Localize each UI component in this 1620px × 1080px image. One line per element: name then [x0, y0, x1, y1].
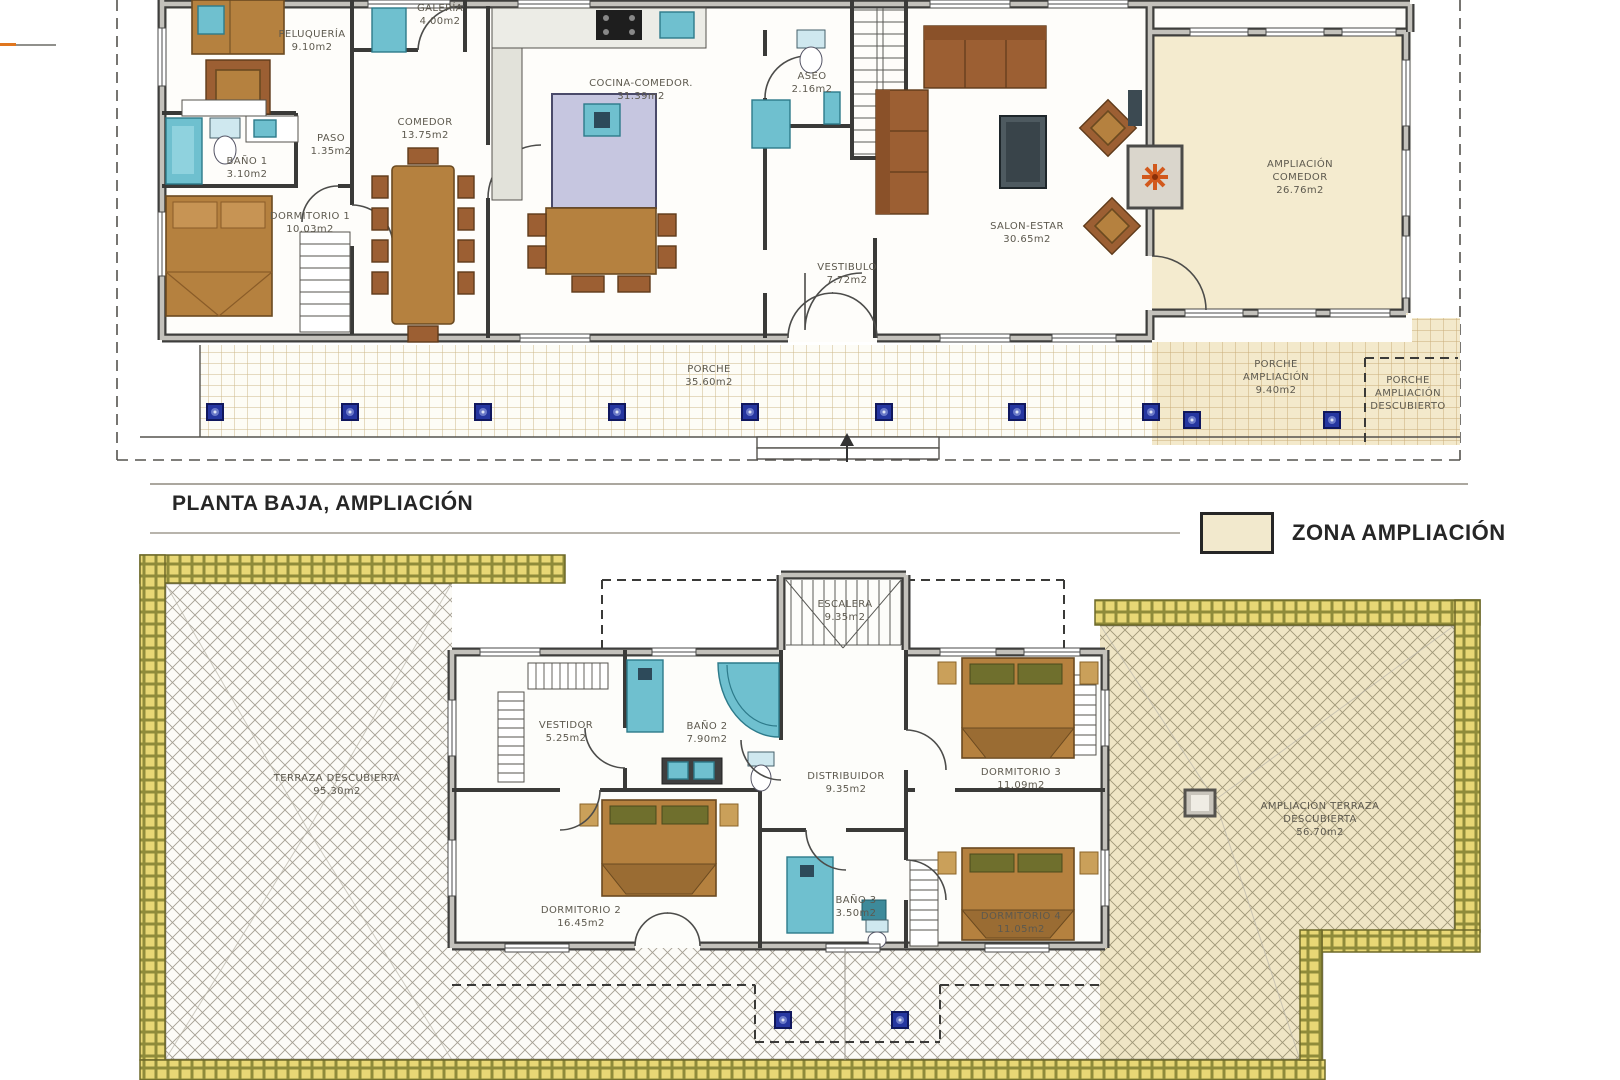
room-label-galeria: GALERÍA4.00m2	[400, 2, 480, 28]
room-label-vestidor: VESTIDOR5.25m2	[526, 719, 606, 745]
radiator-icon	[1128, 90, 1142, 126]
divider-line	[150, 532, 1180, 534]
room-label-cocina-comedor: COCINA-COMEDOR.31.39m2	[571, 77, 711, 103]
room-label-peluqueria: PELUQUERÍA9.10m2	[257, 28, 367, 54]
legend-label: ZONA AMPLIACIÓN	[1292, 520, 1506, 546]
room-label-porche: PORCHE35.60m2	[669, 363, 749, 389]
terrace-column-icon	[1185, 790, 1215, 816]
porch-tiles	[200, 345, 1185, 437]
room-label-dormitorio3: DORMITORIO 311.09m2	[961, 766, 1081, 792]
room-label-distribuidor: DISTRIBUIDOR9.35m2	[791, 770, 901, 796]
room-label-terraza-descubierta: TERRAZA DESCUBIERTA95.30m2	[252, 772, 422, 798]
room-label-paso: PASO1.35m2	[301, 132, 361, 158]
room-label-bano1: BAÑO 13.10m2	[212, 155, 282, 181]
divider-line	[150, 483, 1468, 485]
room-label-dormitorio1: DORMITORIO 110.03m2	[255, 210, 365, 236]
column-marker-icon	[775, 1012, 791, 1028]
bed-icon	[580, 800, 738, 896]
room-label-porche-descubierto: PORCHE AMPLIACIÓN DESCUBIERTO	[1358, 374, 1458, 413]
water-heater-icon	[752, 100, 790, 148]
sink-icon	[246, 116, 298, 142]
room-label-vestibulo: VESTIBULO7.72m2	[802, 261, 892, 287]
sofa-icon	[924, 26, 1046, 88]
vanity-sink-icon	[662, 758, 722, 784]
margin-mark-icon	[0, 43, 16, 46]
shower-icon	[627, 660, 663, 732]
room-label-dormitorio4: DORMITORIO 411.05m2	[961, 910, 1081, 936]
room-label-salon-estar: SALON-ESTAR30.65m2	[977, 220, 1077, 246]
side-table-icon	[182, 100, 266, 116]
kitchen-island-icon	[552, 94, 656, 208]
wardrobe-icon	[300, 232, 350, 332]
room-label-ampliacion-comedor: AMPLIACIÓN COMEDOR26.76m2	[1250, 158, 1350, 197]
margin-mark-icon	[16, 44, 56, 46]
terrace-tiles	[165, 583, 452, 1060]
room-label-comedor: COMEDOR13.75m2	[380, 116, 470, 142]
bed-icon	[938, 658, 1098, 758]
floor-plan-sheet: PLANTA BAJA, AMPLIACIÓN ZONA AMPLIACIÓN …	[0, 0, 1620, 1080]
room-label-dormitorio2: DORMITORIO 216.45m2	[521, 904, 641, 930]
shower-icon	[166, 118, 202, 184]
legend-swatch	[1200, 512, 1274, 554]
ampliacion-terrace-tiles	[1100, 932, 1300, 1060]
room-label-bano2: BAÑO 27.90m2	[672, 720, 742, 746]
terrace-tiles	[452, 948, 1100, 1060]
room-label-bano3: BAÑO 33.50m2	[821, 894, 891, 920]
room-label-ampliacion-terraza: AMPLIACIÓN TERRAZA DESCUBIERTA56.70m2	[1235, 800, 1405, 839]
sink-icon	[824, 92, 840, 124]
ampliacion-terrace-tiles	[1100, 625, 1455, 932]
plan-title: PLANTA BAJA, AMPLIACIÓN	[172, 492, 473, 516]
column-marker-icon	[892, 1012, 908, 1028]
room-label-escalera: ESCALERA9.35m2	[800, 598, 890, 624]
sofa-icon	[876, 90, 928, 214]
room-label-aseo: ASEO2.16m2	[782, 70, 842, 96]
room-label-porche-ampliacion: PORCHE AMPLIACIÓN9.40m2	[1221, 358, 1331, 397]
fireplace-icon	[1128, 146, 1182, 208]
tv-icon	[1000, 116, 1046, 188]
